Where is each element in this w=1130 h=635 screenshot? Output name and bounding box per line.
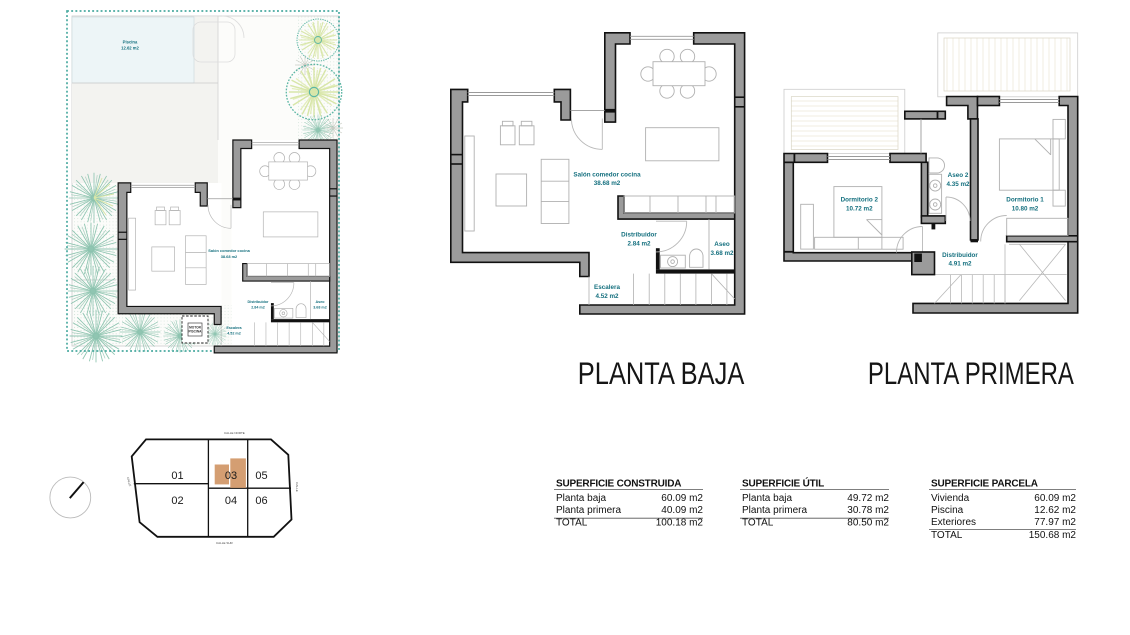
svg-text:TOTAL: TOTAL [742,518,774,529]
svg-text:10.72 m2: 10.72 m2 [846,206,873,213]
svg-text:Distribuidor: Distribuidor [942,252,978,259]
svg-text:4.52 m2: 4.52 m2 [595,293,619,300]
svg-text:CALLE: CALLE [126,477,132,487]
svg-text:12.62 m2: 12.62 m2 [121,46,139,51]
svg-text:Aseo 2: Aseo 2 [948,172,969,179]
svg-text:Planta primera: Planta primera [556,505,621,516]
svg-text:SUPERFICIE CONSTRUIDA: SUPERFICIE CONSTRUIDA [556,478,681,489]
svg-text:Aseo: Aseo [714,241,730,248]
svg-text:06: 06 [255,495,267,507]
svg-text:Salón comedor cocina: Salón comedor cocina [208,248,250,253]
svg-text:40.09 m2: 40.09 m2 [661,505,703,516]
svg-text:Planta baja: Planta baja [556,493,606,504]
svg-text:Dormitorio 2: Dormitorio 2 [841,197,879,204]
svg-text:3.68 m2: 3.68 m2 [313,306,327,310]
svg-text:60.09 m2: 60.09 m2 [661,493,703,504]
svg-text:05: 05 [255,470,267,482]
svg-text:Aseo: Aseo [315,300,325,304]
svg-text:04: 04 [225,495,237,507]
svg-text:CALLE SUR: CALLE SUR [216,541,234,545]
svg-text:38.68 m2: 38.68 m2 [594,180,621,187]
svg-text:Planta baja: Planta baja [742,493,792,504]
svg-text:Escalera: Escalera [594,284,620,291]
svg-text:PISCINA: PISCINA [189,330,203,334]
svg-text:Distribuidor: Distribuidor [621,232,657,239]
svg-text:10.80 m2: 10.80 m2 [1012,205,1039,212]
svg-text:49.72 m2: 49.72 m2 [847,493,889,504]
svg-text:2.84 m2: 2.84 m2 [251,306,265,310]
svg-text:Dormitorio 1: Dormitorio 1 [1006,197,1044,204]
svg-text:TOTAL: TOTAL [556,518,588,529]
svg-text:Planta primera: Planta primera [742,505,807,516]
svg-text:PLANTA BAJA: PLANTA BAJA [578,355,745,391]
svg-text:CALLE: CALLE [295,482,299,492]
svg-text:2.84 m2: 2.84 m2 [627,240,651,247]
svg-text:PLANTA PRIMERA: PLANTA PRIMERA [868,355,1074,391]
svg-text:Escalera: Escalera [226,326,242,330]
svg-text:TOTAL: TOTAL [931,530,963,541]
svg-text:SUPERFICIE PARCELA: SUPERFICIE PARCELA [931,478,1038,489]
svg-text:60.09 m2: 60.09 m2 [1034,493,1076,504]
svg-text:Exteriores: Exteriores [931,517,976,528]
svg-text:CALLE NORTE: CALLE NORTE [224,431,245,435]
svg-text:Vivienda: Vivienda [931,493,970,504]
svg-text:Piscina: Piscina [123,40,138,45]
svg-text:4.91 m2: 4.91 m2 [948,261,972,268]
svg-text:Piscina: Piscina [931,505,964,516]
svg-text:01: 01 [171,470,183,482]
svg-text:38.68 m2: 38.68 m2 [221,254,238,259]
svg-text:30.78 m2: 30.78 m2 [847,505,889,516]
svg-text:4.52 m2: 4.52 m2 [227,332,241,336]
svg-text:02: 02 [171,495,183,507]
svg-text:77.97 m2: 77.97 m2 [1034,517,1076,528]
svg-text:4.35 m2: 4.35 m2 [946,181,970,188]
svg-text:Distribuidor: Distribuidor [248,300,269,304]
svg-text:100.18 m2: 100.18 m2 [656,518,704,529]
svg-text:3.68 m2: 3.68 m2 [710,250,734,257]
svg-text:03: 03 [225,470,237,482]
svg-text:Salón comedor cocina: Salón comedor cocina [573,171,641,178]
svg-text:80.50 m2: 80.50 m2 [847,518,889,529]
svg-text:150.68 m2: 150.68 m2 [1029,530,1077,541]
svg-text:SUPERFICIE ÚTIL: SUPERFICIE ÚTIL [742,476,824,489]
svg-text:12.62 m2: 12.62 m2 [1034,505,1076,516]
